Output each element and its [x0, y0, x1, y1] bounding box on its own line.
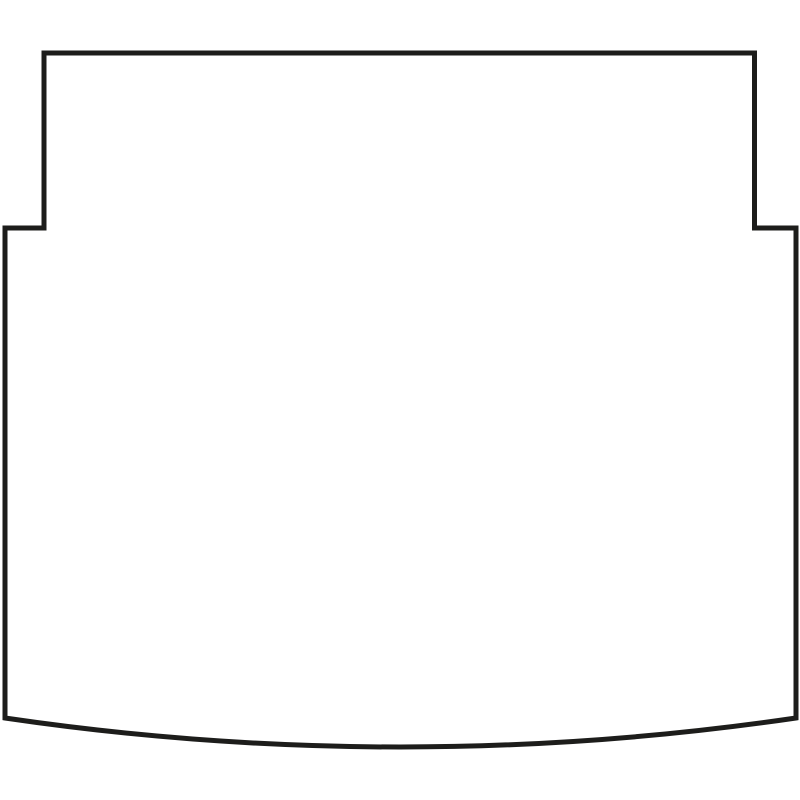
cargo-mat-outline-drawing	[0, 0, 800, 800]
cargo-mat-outline-path	[5, 53, 796, 747]
drawing-canvas	[0, 0, 800, 800]
